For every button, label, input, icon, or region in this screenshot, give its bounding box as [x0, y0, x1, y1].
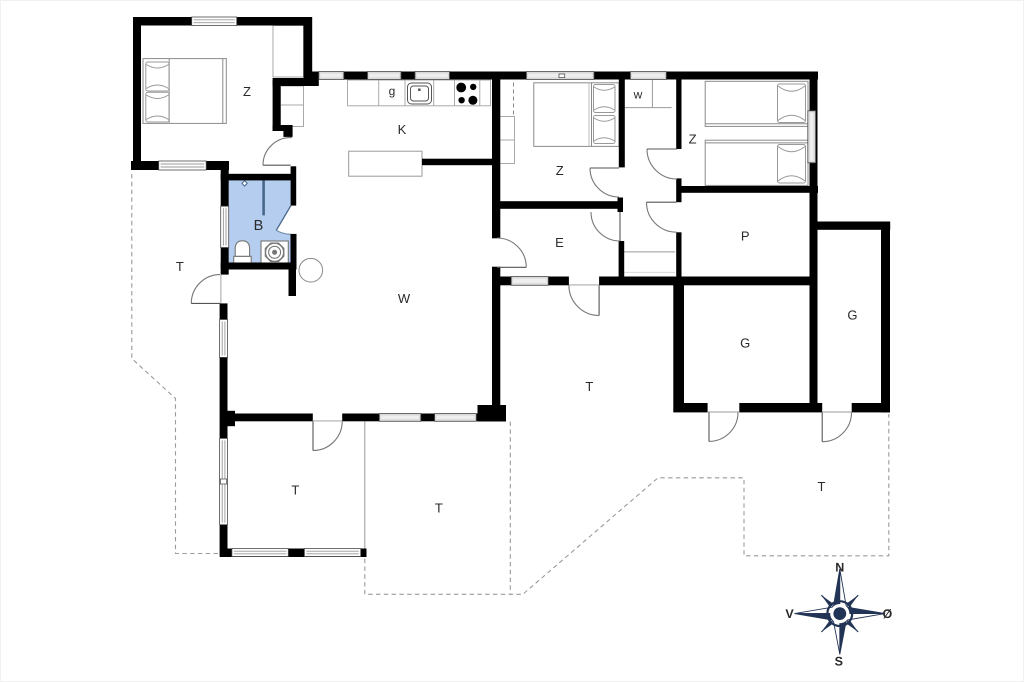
svg-text:g: g: [389, 84, 396, 98]
svg-text:G: G: [740, 336, 750, 351]
svg-text:T: T: [176, 259, 184, 274]
svg-text:W: W: [398, 291, 411, 306]
svg-text:T: T: [585, 379, 593, 394]
svg-text:T: T: [818, 479, 826, 494]
svg-text:w: w: [633, 88, 643, 102]
svg-text:P: P: [741, 229, 750, 244]
svg-text:K: K: [398, 122, 407, 137]
svg-text:T: T: [435, 501, 443, 516]
svg-text:Z: Z: [243, 84, 251, 99]
svg-text:Ø: Ø: [883, 607, 893, 621]
svg-text:S: S: [835, 655, 843, 669]
svg-text:N: N: [835, 561, 844, 575]
svg-text:B: B: [254, 218, 264, 234]
svg-text:T: T: [291, 483, 299, 498]
svg-text:E: E: [555, 235, 564, 250]
svg-text:V: V: [785, 607, 794, 621]
svg-text:Z: Z: [556, 163, 564, 178]
svg-text:G: G: [847, 308, 857, 323]
svg-text:Z: Z: [689, 132, 697, 147]
